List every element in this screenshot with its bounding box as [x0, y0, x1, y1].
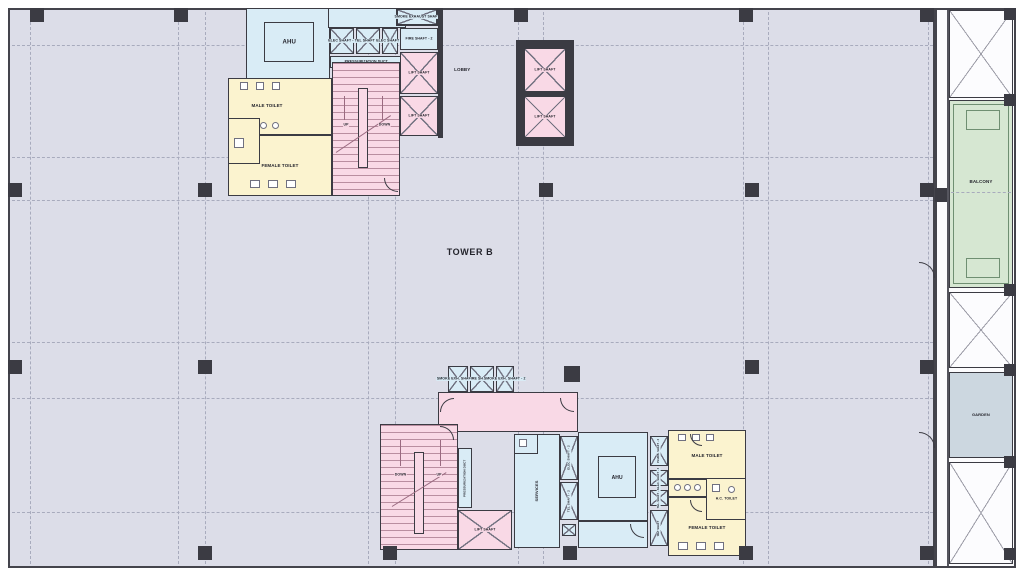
grid-line [12, 342, 933, 343]
balcony-label-area: BALCONY [949, 176, 1013, 188]
shaft-plumb-2: PLUMB. SHAFT - 2 [650, 436, 668, 466]
balcony-label: BALCONY [969, 180, 993, 185]
lobby-label: LOBBY [453, 68, 470, 73]
shaft-label: SMOKE EXH. SHAFT - 2 [484, 377, 527, 381]
garden-room: GARDEN [949, 372, 1013, 458]
column [739, 546, 753, 560]
ahu-label: AHU [611, 474, 623, 480]
column [1004, 548, 1016, 560]
female-toilet-area: FEMALE TOILET [668, 522, 746, 534]
floor-plan: AHU ELEC SHAFT - 1 TEL SHAFT - 1 ELEC SH… [0, 0, 1024, 578]
shaft-elec-2b: ELEC SHAFT - 2 [560, 436, 578, 480]
pressurization-duct-2: PRESSURIZATION DUCT [458, 448, 472, 508]
column [745, 360, 759, 374]
shaft-label: TEL. SHAFT - 3 [657, 488, 661, 507]
male-toilet-area: MALE TOILET [228, 100, 306, 112]
stair-arrow [400, 440, 401, 466]
shaft-smoke-2: SMOKE EXH. SHAFT - 2 [496, 366, 514, 392]
services-label: SERVICES [534, 481, 539, 502]
column [920, 546, 934, 560]
column [1004, 8, 1016, 20]
female-toilet-label: FEMALE TOILET [688, 526, 726, 531]
planter [966, 110, 1000, 130]
column [563, 546, 577, 560]
shaft-label: SMOKE EXHAUST SHAFT [394, 15, 440, 19]
basin [260, 122, 267, 129]
column [198, 546, 212, 560]
grid-line [12, 45, 933, 46]
shaft-label: ELEC SHAFT - 2 [567, 446, 571, 471]
column [539, 183, 553, 197]
column [514, 8, 528, 22]
hc-basin [728, 486, 735, 493]
column [198, 183, 212, 197]
column [935, 188, 947, 202]
wc [678, 542, 688, 550]
stair-arrow [382, 96, 383, 120]
column [745, 183, 759, 197]
hc-toilet-label: H.C. TOILET [715, 497, 737, 501]
basin [674, 484, 681, 491]
column [739, 8, 753, 22]
basin [684, 484, 691, 491]
grid-line [12, 200, 933, 201]
stair-stringer [414, 452, 424, 534]
column [174, 8, 188, 22]
wc [250, 180, 260, 188]
lift-shaft: LIFT SHAFT [458, 510, 512, 550]
shaft-label: TEL SHAFT - 2 [567, 490, 571, 512]
grid-line [928, 12, 929, 564]
shaft-tel-3: TEL. SHAFT - 3 [650, 490, 668, 506]
shaft-smoke-1: SMOKE EXH. SHAFT - 1 [448, 366, 468, 392]
column [1004, 456, 1016, 468]
shaft-wet: WET SHAFT [650, 510, 668, 546]
planter [966, 258, 1000, 278]
lift-shaft: LIFT SHAFT [400, 52, 438, 94]
urinal [678, 434, 686, 441]
wc [286, 180, 296, 188]
column [1004, 284, 1016, 296]
ahu-label: AHU [282, 39, 297, 46]
lift-shaft-label: LIFT SHAFT [534, 68, 556, 72]
lift-shaft-label: LIFT SHAFT [408, 71, 430, 75]
column [564, 366, 580, 382]
stair-arrow [440, 440, 441, 466]
female-toilet-label: FEMALE TOILET [261, 164, 299, 169]
stair-arrow [344, 96, 345, 120]
column [920, 183, 934, 197]
lift-shaft-label: LIFT SHAFT [474, 528, 496, 532]
column [383, 546, 397, 560]
small-shaft [562, 524, 576, 536]
shaft-elec-1: ELEC SHAFT - 1 [330, 28, 354, 54]
grid-line [30, 12, 31, 564]
shaft-smoke-exhaust: SMOKE EXHAUST SHAFT [396, 8, 438, 26]
column [198, 360, 212, 374]
column [1004, 364, 1016, 376]
duct-label: PRESSURIZATION DUCT [463, 459, 467, 496]
wc [696, 542, 706, 550]
basin [272, 122, 279, 129]
stair-up: UP [334, 120, 358, 130]
ahu-partition [578, 520, 648, 522]
shaft-label: ELEC SHAFT - 1 [327, 39, 356, 43]
grid-line [12, 157, 933, 158]
up-label: UP [343, 123, 349, 127]
tower-title-area: TOWER B [420, 246, 520, 260]
stair-stringer [358, 88, 368, 168]
stair-down: DOWN [386, 470, 414, 480]
balcony-inner-outline [953, 104, 1009, 284]
lift-shaft-label: LIFT SHAFT [408, 114, 430, 118]
shaft-label: PLUMB. SHAFT - 2 [657, 439, 661, 463]
down-label: DOWN [394, 473, 406, 477]
toilet-partition [668, 496, 708, 498]
sink [519, 439, 527, 447]
grid-line [178, 12, 179, 564]
lift-shaft: LIFT SHAFT [400, 96, 438, 136]
male-toilet-label: MALE TOILET [691, 454, 723, 459]
garden-label: GARDEN [972, 413, 991, 417]
ahu-duct: AHU [264, 22, 314, 62]
basin [694, 484, 701, 491]
cleaner-room [228, 118, 260, 164]
column [30, 8, 44, 22]
up-label: UP [436, 473, 442, 477]
stair-down: DOWN [370, 120, 398, 130]
shaft-elec-2: ELEC SHAFT - 2 [382, 28, 398, 54]
urinal [272, 82, 280, 90]
lobby-area: LOBBY [438, 64, 486, 76]
column [920, 8, 934, 22]
shaft-tel-2: TEL SHAFT - 2 [560, 482, 578, 520]
column [1004, 94, 1016, 106]
urinal [256, 82, 264, 90]
tower-title: TOWER B [446, 248, 495, 258]
lift-shaft: LIFT SHAFT [524, 96, 566, 138]
ahu-duct-2: AHU [598, 456, 636, 498]
lift-shaft-label: LIFT SHAFT [534, 115, 556, 119]
hc-wc [712, 484, 720, 492]
wc [268, 180, 278, 188]
urinal [240, 82, 248, 90]
column [920, 360, 934, 374]
lift-shaft: LIFT SHAFT [524, 48, 566, 92]
shaft-fire-2: FIRE SHAFT - 2 [400, 28, 438, 50]
shaft-label: WET SHAFT [657, 520, 661, 535]
down-label: DOWN [378, 123, 390, 127]
grid-line [951, 192, 1011, 193]
wing-void-panel [949, 292, 1013, 368]
male-toilet-label: MALE TOILET [251, 104, 283, 109]
grid-line [768, 12, 769, 564]
toilet-partition [668, 478, 708, 480]
lift-lobby [438, 392, 578, 432]
shaft-label: FIRE SHAFT - 2 [405, 37, 433, 41]
urinal [706, 434, 714, 441]
stair-up: UP [428, 470, 450, 480]
sink [234, 138, 244, 148]
male-toilet-area: MALE TOILET [668, 450, 746, 462]
wing-void-panel [949, 10, 1013, 98]
grid-line [205, 12, 206, 564]
column [8, 183, 22, 197]
shaft-label: ELEC. SHAFT - 3 [657, 467, 661, 489]
wc [714, 542, 724, 550]
shaft-elec-3: ELEC. SHAFT - 3 [650, 470, 668, 486]
column [8, 360, 22, 374]
